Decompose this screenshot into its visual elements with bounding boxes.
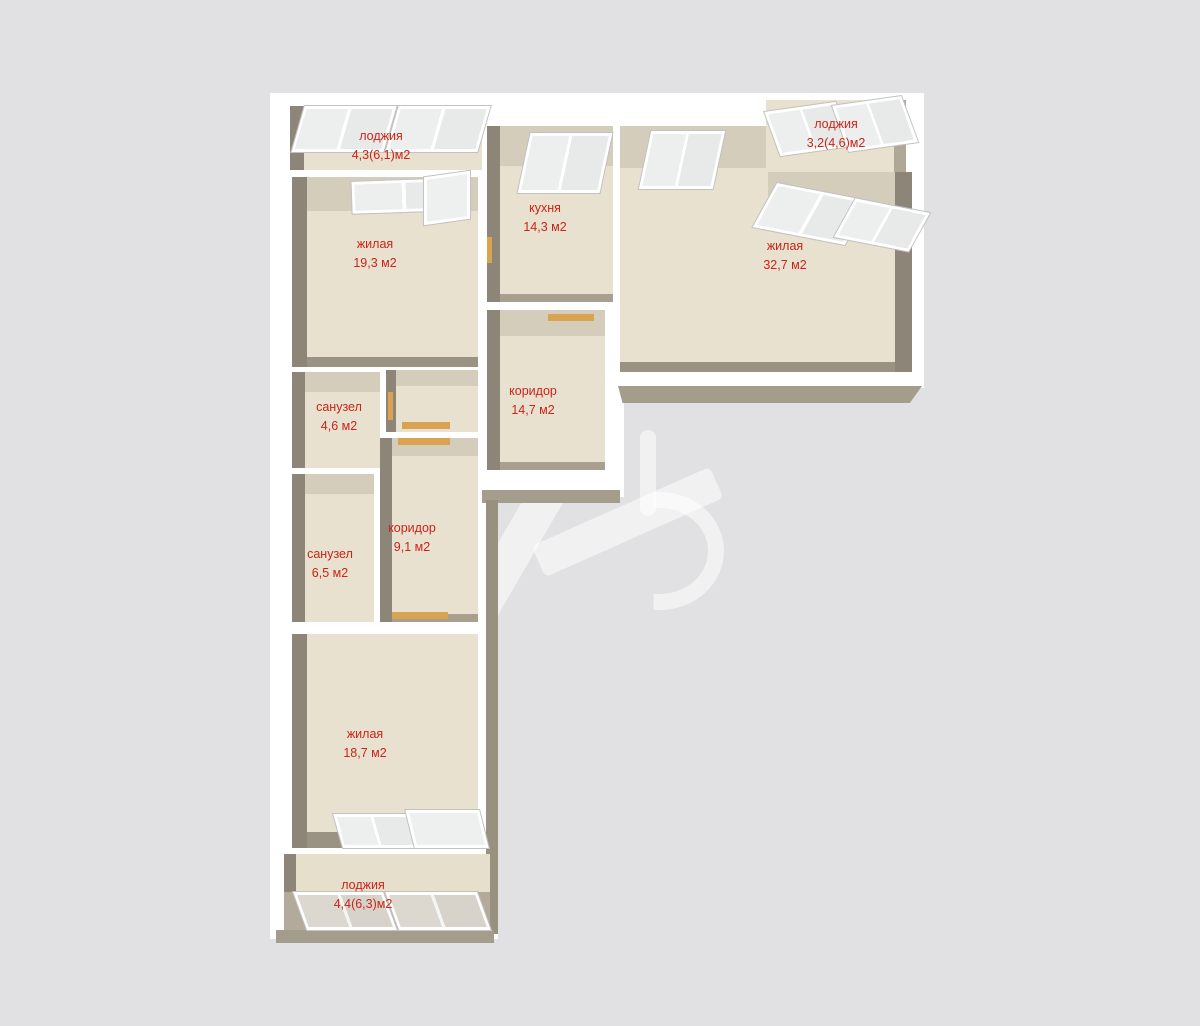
door-threshold-icon (487, 237, 492, 263)
room-area: 4,4(6,3)м2 (334, 895, 393, 914)
room-area: 32,7 м2 (763, 256, 806, 275)
window-icon (639, 131, 725, 189)
room-area: 3,2(4,6)м2 (807, 134, 866, 153)
room-label-loggia-top-left: лоджия 4,3(6,1)м2 (352, 127, 411, 165)
window-icon (385, 892, 491, 930)
room-name: лоджия (334, 876, 393, 895)
door-threshold-icon (398, 438, 450, 445)
balcony-door-icon (424, 171, 470, 225)
door-threshold-icon (548, 314, 594, 321)
room-area: 19,3 м2 (353, 254, 396, 273)
room-name: санузел (316, 398, 362, 417)
room-area: 4,6 м2 (316, 417, 362, 436)
room-label-bathroom-large: санузел 6,5 м2 (307, 545, 353, 583)
room-label-loggia-top-right: лоджия 3,2(4,6)м2 (807, 115, 866, 153)
room-label-corridor-small: коридор 9,1 м2 (388, 519, 436, 557)
room-name: кухня (523, 199, 566, 218)
room-label-corridor-main: коридор 14,7 м2 (509, 382, 557, 420)
room-name: жилая (343, 725, 386, 744)
room-name: коридор (388, 519, 436, 538)
floor-plan: лоджия 4,3(6,1)м2 жилая 19,3 м2 кухня 14… (0, 0, 1200, 1026)
room-area: 9,1 м2 (388, 538, 436, 557)
room-label-living-left: жилая 19,3 м2 (353, 235, 396, 273)
room-name: лоджия (352, 127, 411, 146)
room-area: 6,5 м2 (307, 564, 353, 583)
wall-face (618, 386, 922, 403)
wall-face (482, 490, 620, 503)
room-area: 18,7 м2 (343, 744, 386, 763)
room-area: 14,3 м2 (523, 218, 566, 237)
window-icon (333, 814, 419, 848)
room-name: жилая (763, 237, 806, 256)
room-name: коридор (509, 382, 557, 401)
room-label-kitchen: кухня 14,3 м2 (523, 199, 566, 237)
room-name: жилая (353, 235, 396, 254)
room-area: 4,3(6,1)м2 (352, 146, 411, 165)
balcony-door-icon (405, 810, 488, 848)
room-name: санузел (307, 545, 353, 564)
room-name: лоджия (807, 115, 866, 134)
door-threshold-icon (402, 422, 450, 429)
wall-face (276, 930, 494, 943)
room-label-loggia-bottom: лоджия 4,4(6,3)м2 (334, 876, 393, 914)
door-threshold-icon (392, 612, 448, 619)
room-label-living-right: жилая 32,7 м2 (763, 237, 806, 275)
room-label-bathroom-small: санузел 4,6 м2 (316, 398, 362, 436)
window-icon (518, 133, 613, 193)
door-threshold-icon (388, 392, 393, 420)
room-label-living-bottom: жилая 18,7 м2 (343, 725, 386, 763)
room-area: 14,7 м2 (509, 401, 557, 420)
